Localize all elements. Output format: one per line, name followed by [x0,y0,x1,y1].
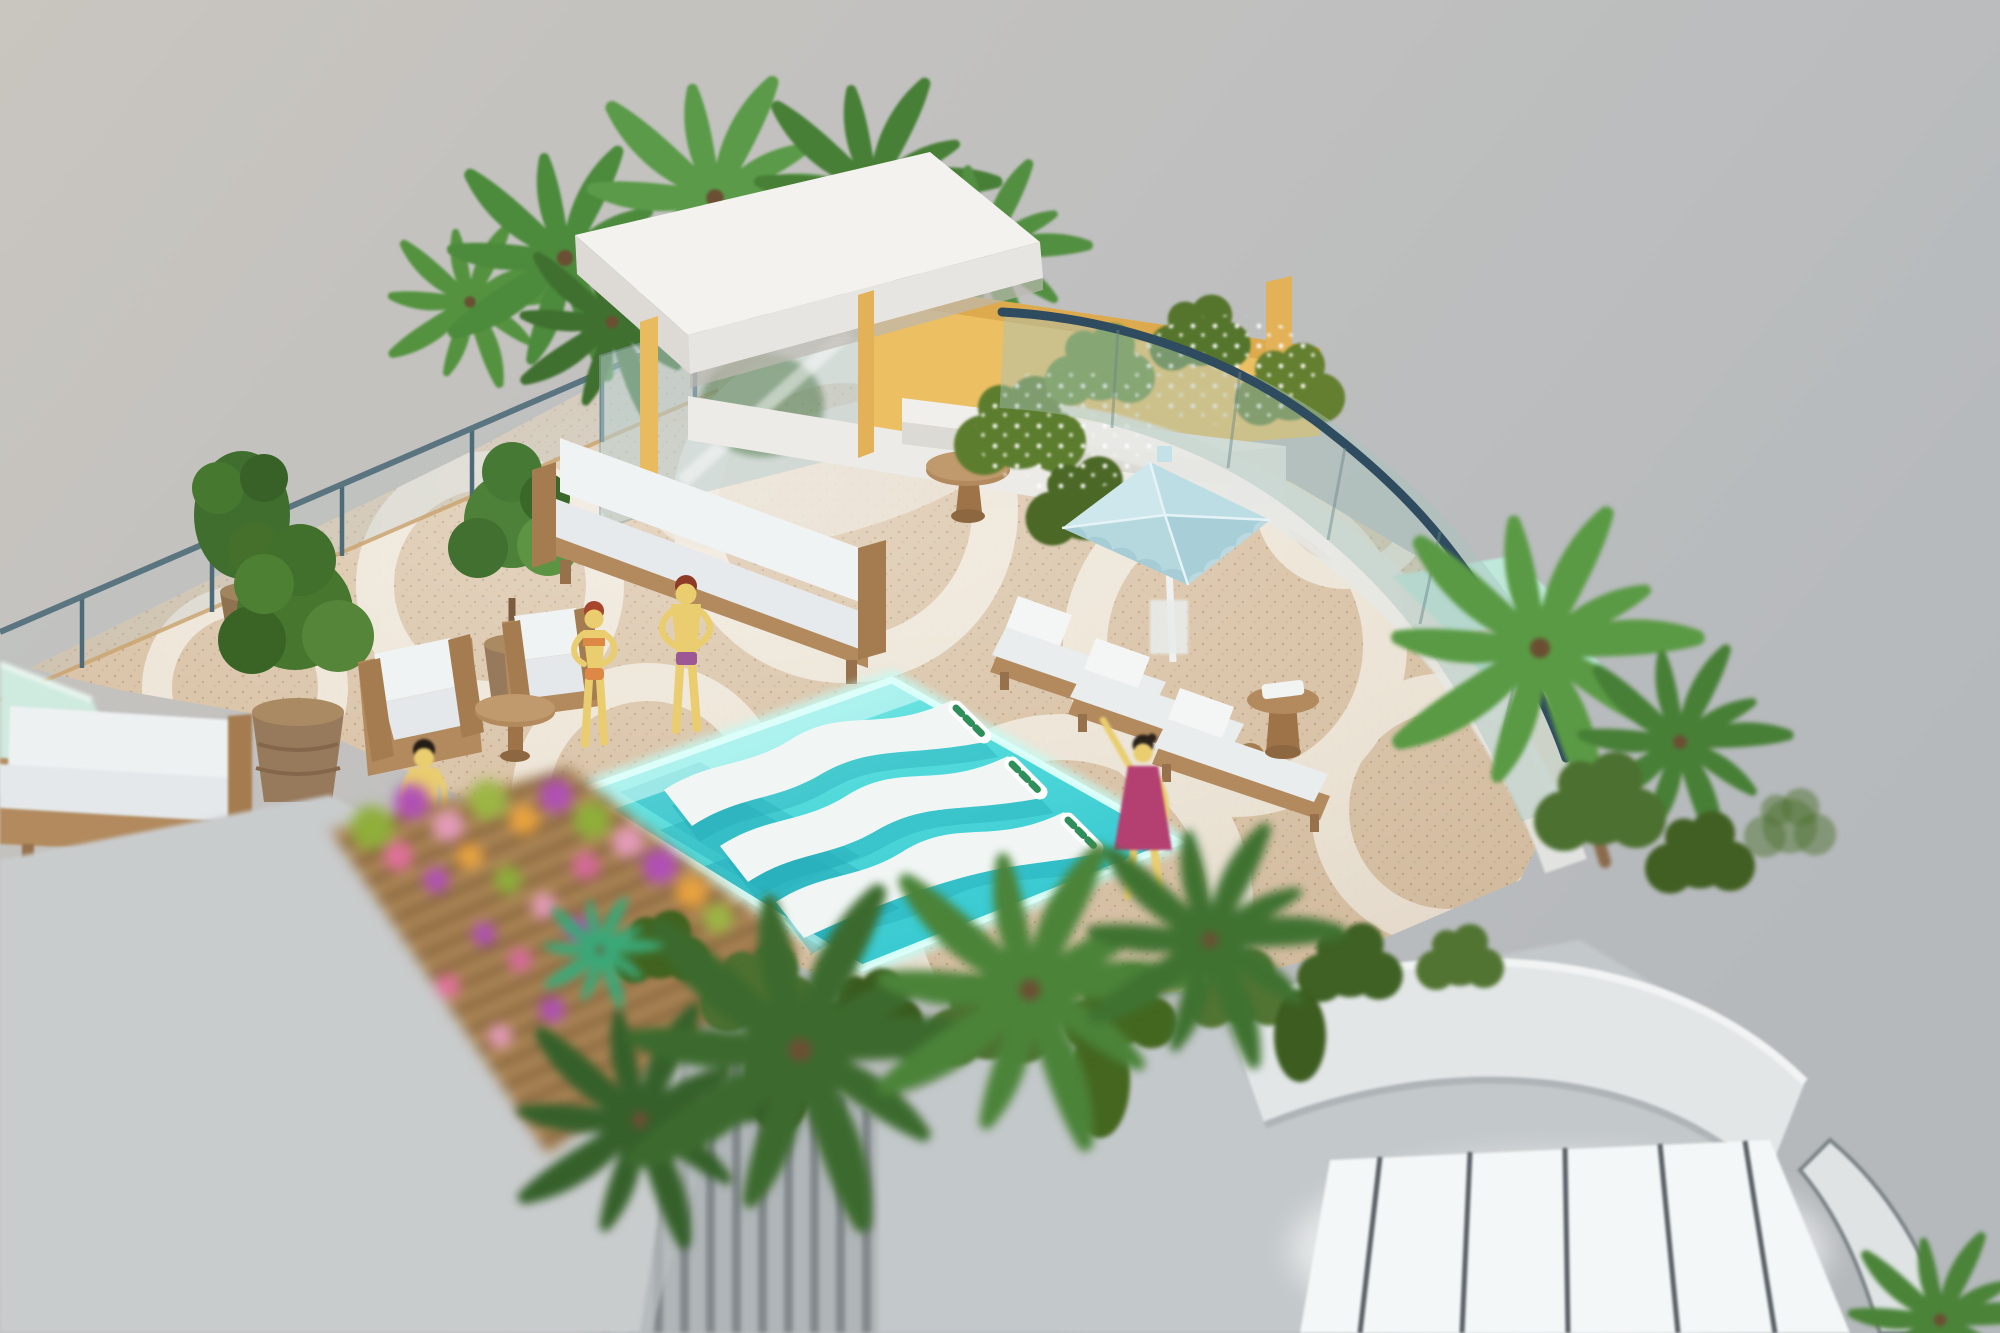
bikini-top [583,638,605,646]
pavilion-post-mid [858,290,874,458]
sofa-arm-right [858,540,886,660]
bikini-bottom [585,668,604,680]
umbrella-finial [1157,446,1172,462]
pole-wrap [1150,600,1188,654]
swim-trunks [676,652,697,665]
scene-canvas [0,0,2000,1333]
sofa-arm-left [532,462,556,568]
photo-of-architectural-model [0,0,2000,1333]
